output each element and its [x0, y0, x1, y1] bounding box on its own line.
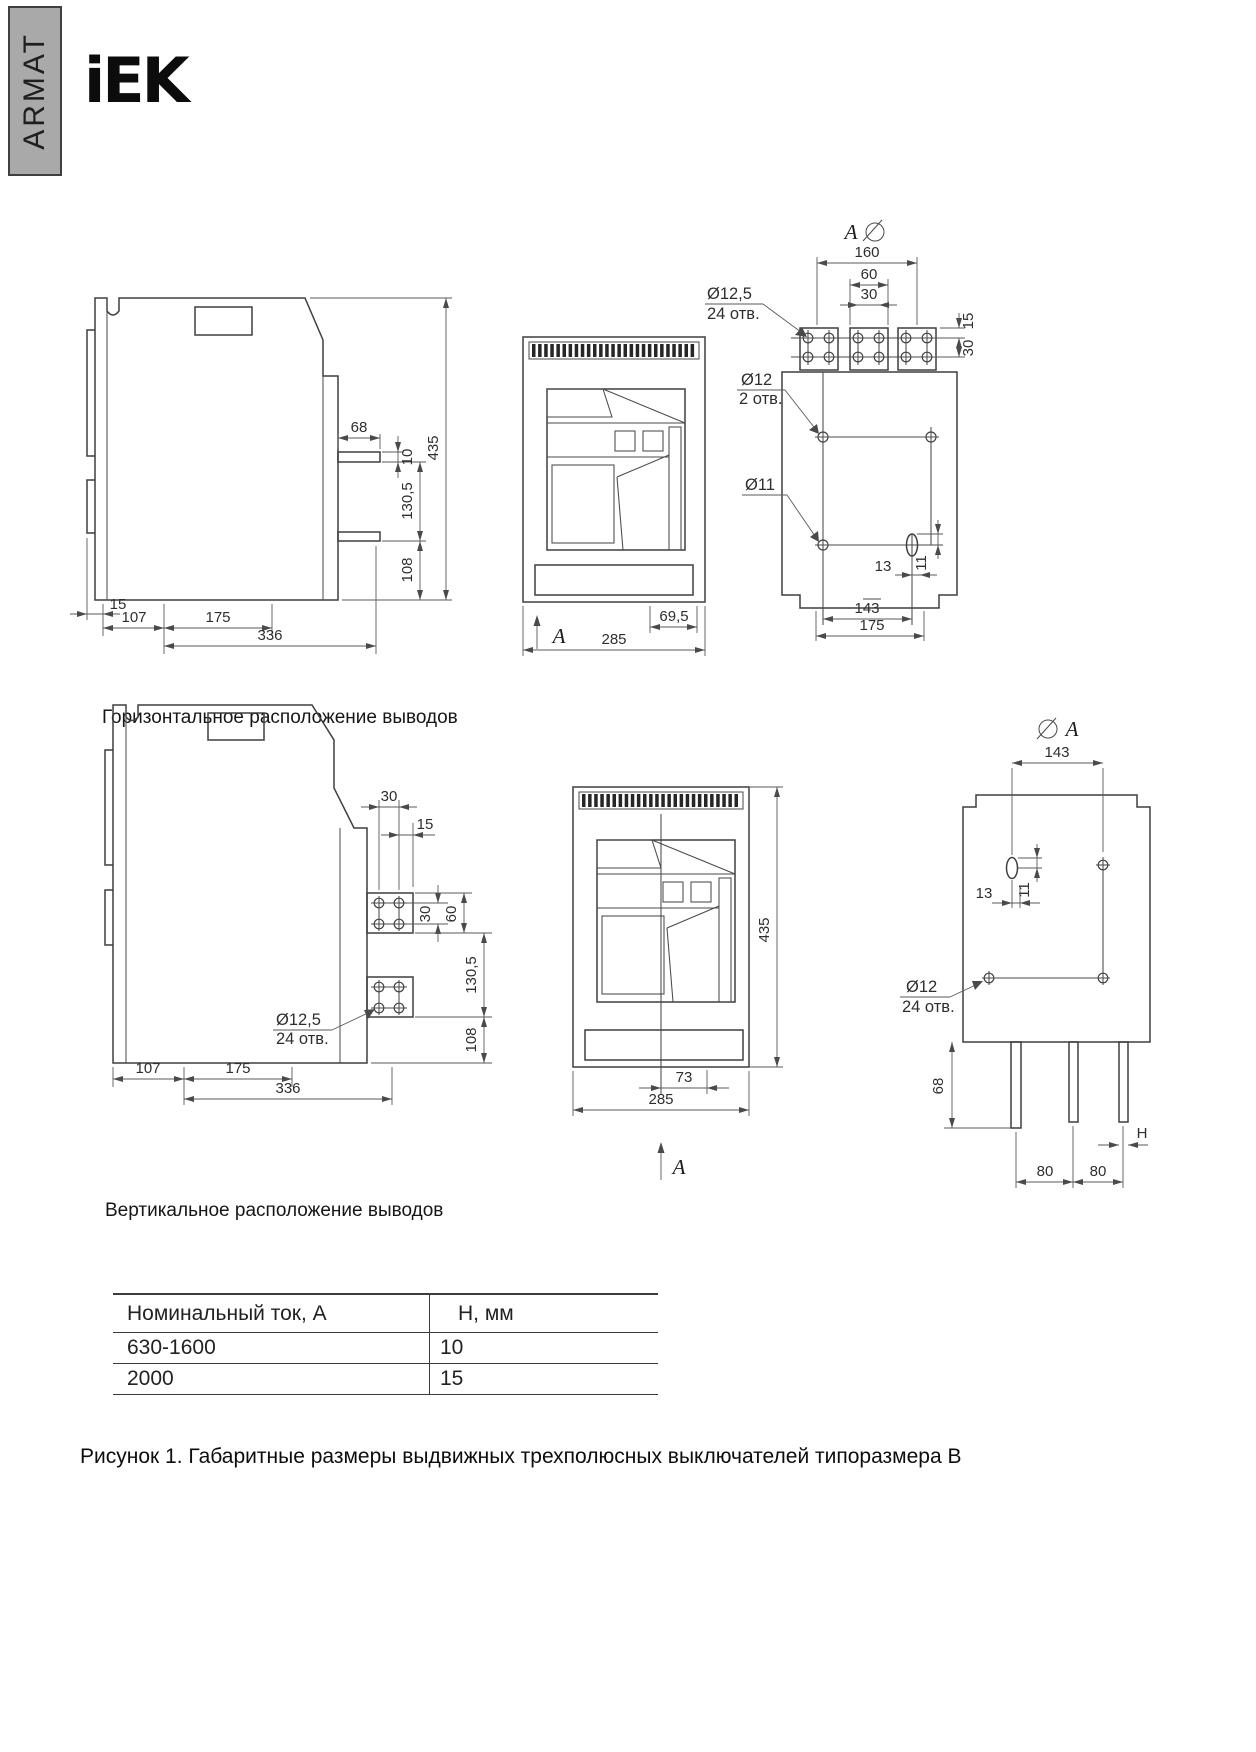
dim-73: 73	[676, 1069, 693, 1086]
dim-107: 107	[121, 609, 146, 626]
hole-label-12-5: Ø12,5	[276, 1011, 321, 1029]
dim-11: 11	[1016, 882, 1033, 898]
body-outline	[963, 795, 1150, 1128]
dim-60: 60	[443, 906, 460, 923]
dimensions: 435 73 285 A	[573, 787, 783, 1180]
table-header-row: Номинальный ток, А Н, мм	[113, 1295, 658, 1333]
view-marker: A	[843, 220, 884, 244]
view-letter: A	[671, 1155, 686, 1179]
col-header-current: Номинальный ток, А	[113, 1295, 429, 1332]
bus-bar-middle	[1069, 1042, 1078, 1122]
hole-label-12-qty: 24 отв.	[902, 998, 955, 1016]
view-letter: A	[551, 624, 566, 648]
cell-h: 10	[429, 1333, 658, 1363]
dim-160: 160	[854, 244, 879, 261]
view-horizontal-side: 68 10 130,5 108 435 15 10	[60, 288, 460, 658]
view-vertical-side: 30 15 30 60 130,5 108 Ø12,5 24 отв.	[80, 695, 520, 1110]
dim-108: 108	[463, 1027, 480, 1052]
dimensions: 30 15 30 60 130,5 108 Ø12,5 24 отв.	[113, 788, 492, 1105]
dim-336: 336	[275, 1080, 300, 1097]
dim-68: 68	[351, 419, 368, 436]
caption-vertical: Вертикальное расположение выводов	[105, 1200, 443, 1222]
dim-10: 10	[399, 449, 416, 466]
hole-label-12-5: Ø12,5	[707, 285, 752, 303]
hole-label-12: Ø12	[906, 978, 937, 996]
view-vertical-rear: A 143 11 13 Ø	[880, 640, 1256, 1210]
dim-H: H	[1137, 1125, 1148, 1142]
hole-label-12: Ø12	[741, 371, 772, 389]
table-row: 2000 15	[113, 1364, 658, 1394]
bus-bar-right	[1119, 1042, 1128, 1122]
dim-30b: 30	[417, 906, 434, 923]
view-horizontal-rear: A	[645, 195, 1075, 650]
breaker-outline	[105, 705, 413, 1063]
drawing-sheet: ARMAT iEK 68 10 130,5	[0, 0, 1256, 1752]
dim-175: 175	[205, 609, 230, 626]
hole-label-12-qty: 2 отв.	[739, 390, 782, 408]
body-outline	[782, 372, 957, 625]
dimensions: 160 60 30 Ø12,5 24 отв. 15 30 Ø12 2 отв.	[705, 244, 977, 641]
view-direction-arrow	[658, 1142, 665, 1153]
dim-11: 11	[913, 555, 930, 571]
dim-15: 15	[417, 816, 434, 833]
breaker-outline	[87, 298, 380, 600]
breaker-front	[573, 787, 749, 1094]
armat-series-label: ARMAT	[18, 32, 52, 150]
dim-285: 285	[648, 1091, 673, 1108]
dim-15: 15	[960, 313, 977, 330]
dim-175: 175	[225, 1060, 250, 1077]
dim-336: 336	[257, 627, 282, 644]
dim-143: 143	[854, 600, 879, 617]
col-header-h: Н, мм	[429, 1295, 658, 1332]
cell-current: 630-1600	[113, 1333, 429, 1363]
dim-435: 435	[756, 917, 773, 942]
dim-435: 435	[425, 435, 442, 460]
dim-175: 175	[859, 617, 884, 634]
view-vertical-front: 435 73 285 A	[555, 782, 800, 1197]
iek-logo: iEK	[84, 44, 187, 117]
bus-bar-left	[1011, 1042, 1021, 1128]
hole-label-11: Ø11	[745, 476, 775, 494]
hole-label-12-5-qty: 24 отв.	[276, 1030, 329, 1048]
dim-13: 13	[875, 558, 892, 575]
dim-80b: 80	[1090, 1163, 1107, 1180]
dim-68: 68	[930, 1078, 947, 1095]
dim-108: 108	[399, 557, 416, 582]
terminal-pads	[791, 328, 945, 370]
dim-13: 13	[976, 885, 993, 902]
hole-label-12-5-qty: 24 отв.	[707, 305, 760, 323]
dimensions: 143 11 13 Ø12 24 отв. 68 80	[900, 744, 1148, 1188]
dim-60: 60	[861, 266, 878, 283]
dim-30b: 30	[960, 340, 977, 357]
dim-30: 30	[861, 286, 878, 303]
view-marker: A	[1037, 717, 1079, 741]
cell-h: 15	[429, 1364, 658, 1394]
view-direction-arrow	[534, 615, 541, 626]
table-row: 630-1600 10	[113, 1333, 658, 1364]
dim-285: 285	[601, 631, 626, 648]
dim-143: 143	[1044, 744, 1069, 761]
rated-current-table: Номинальный ток, А Н, мм 630-1600 10 200…	[113, 1293, 658, 1395]
armat-series-banner: ARMAT	[8, 6, 62, 176]
cell-current: 2000	[113, 1364, 429, 1394]
dim-30: 30	[381, 788, 398, 805]
dim-107: 107	[135, 1060, 160, 1077]
dim-130-5: 130,5	[399, 482, 416, 520]
view-letter: A	[843, 220, 858, 244]
figure-caption: Рисунок 1. Габаритные размеры выдвижных …	[80, 1445, 962, 1469]
dim-130-5: 130,5	[463, 956, 480, 994]
dim-80a: 80	[1037, 1163, 1054, 1180]
view-letter: A	[1064, 717, 1079, 741]
